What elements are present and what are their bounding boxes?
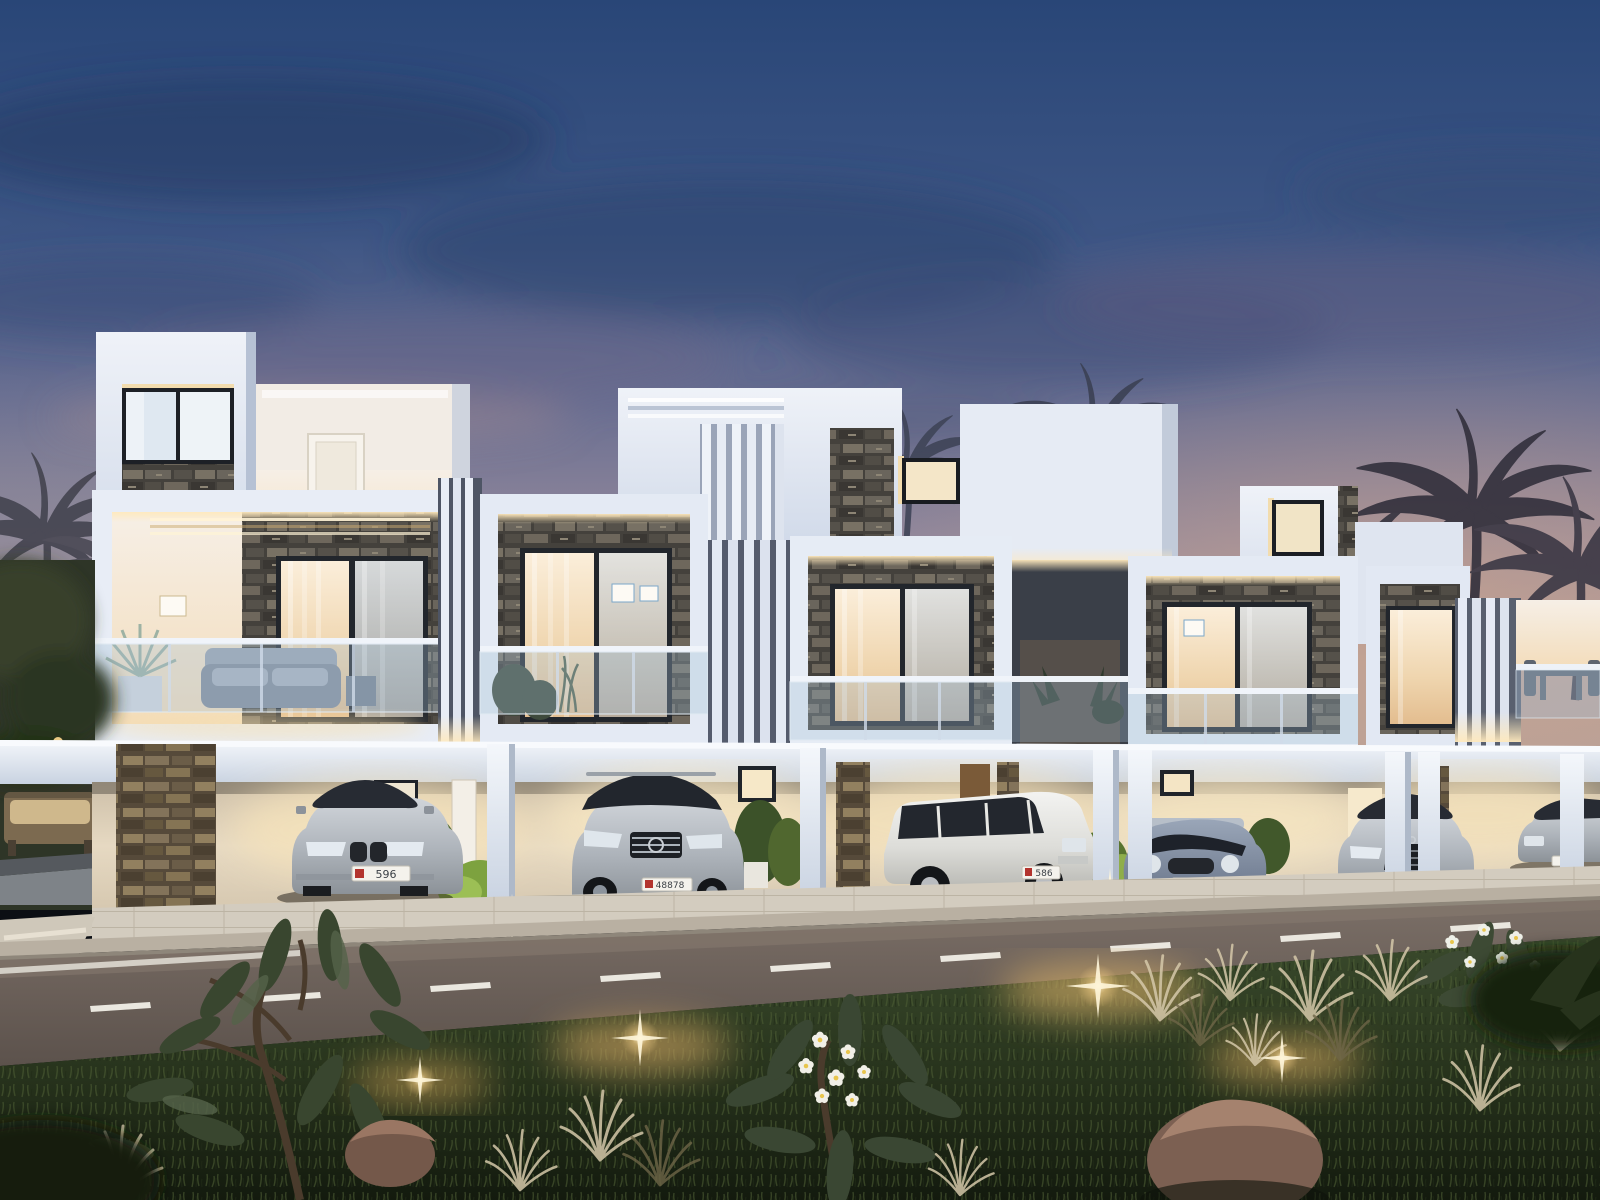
scene-canvas: 596 48878 586 <box>0 0 1600 1200</box>
architectural-render: 596 48878 586 <box>0 0 1600 1200</box>
